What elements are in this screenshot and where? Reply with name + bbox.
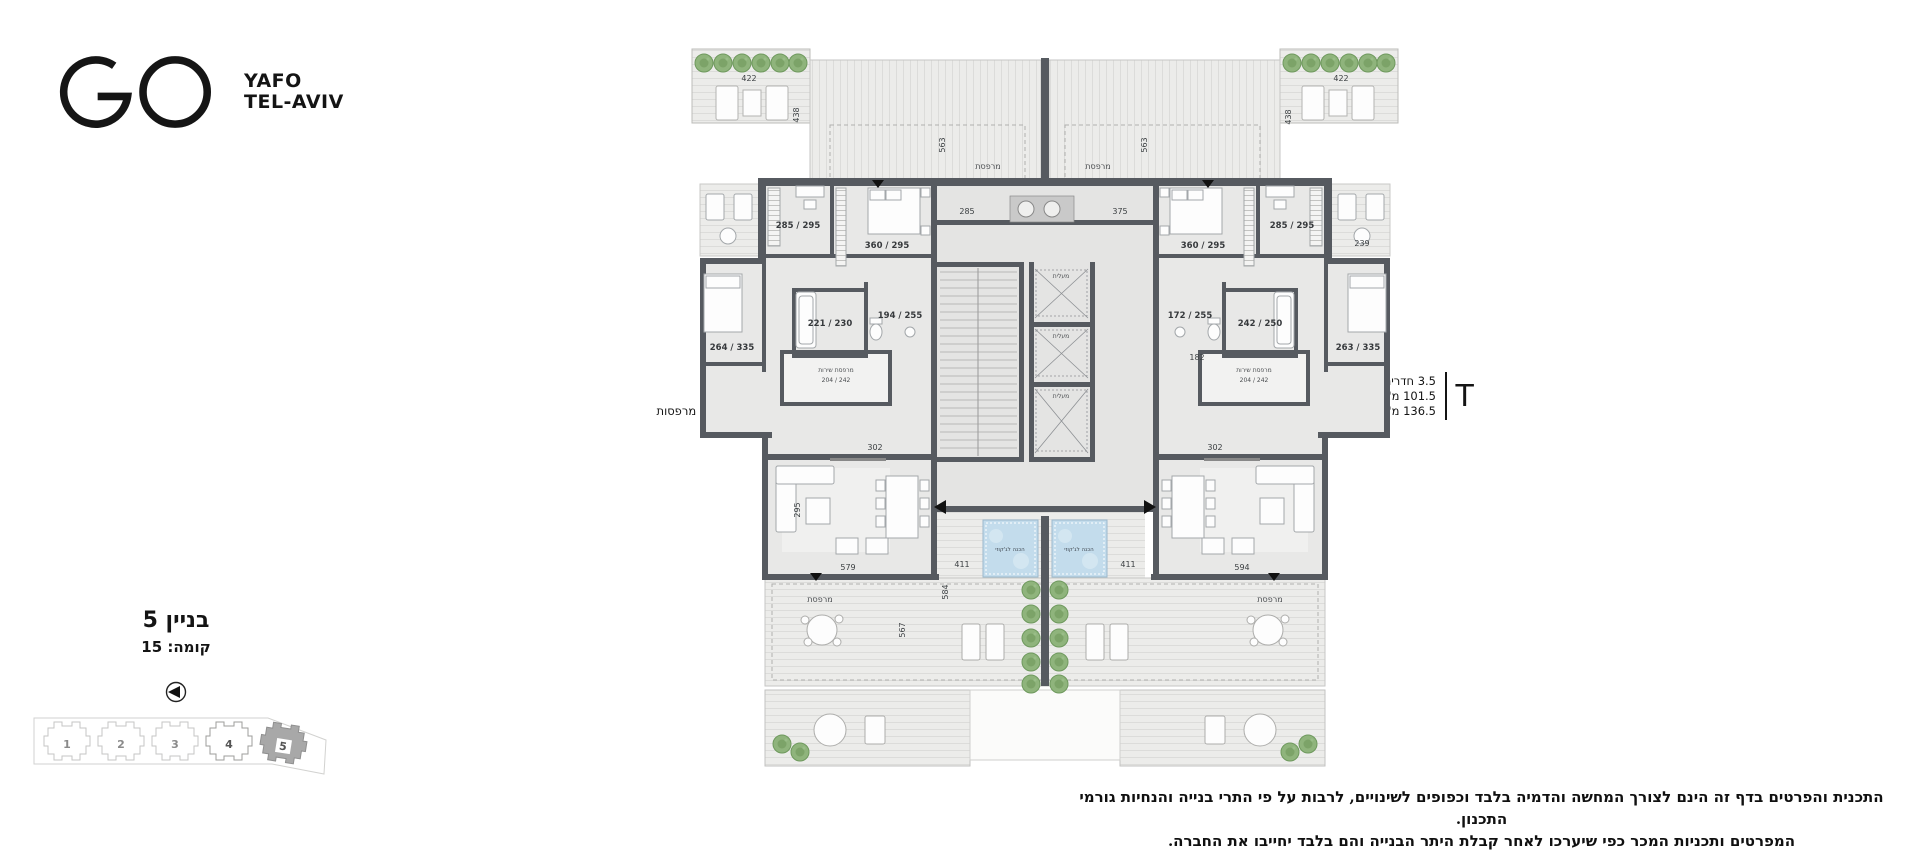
dim-label: 438 [792, 107, 801, 122]
dim-label: 302 [1207, 443, 1222, 452]
jacuzzi-left: הכנה לג'קוזי [983, 520, 1038, 577]
go-logo-icon [58, 46, 228, 138]
dim-label: 239 [1354, 239, 1369, 248]
elevator-label: מעלית [1053, 393, 1070, 400]
room-dim: 285 / 295 [776, 221, 821, 231]
room-dim: 360 / 295 [865, 241, 910, 251]
top-terraces: מרפסת מרפסת 422 422 438 438 563 563 [692, 49, 1398, 182]
terrace-label: מרפסת [1257, 595, 1282, 604]
dim-label: 411 [1120, 560, 1135, 569]
room-dim: 360 / 295 [1181, 241, 1226, 251]
dim-label: 182 [1189, 353, 1204, 362]
dim-label: 295 [793, 502, 802, 517]
dim-label: 579 [840, 563, 855, 572]
terrace-label: מרפסת [807, 595, 832, 604]
jacuzzi-right: הכנה לג'קוזי [1052, 520, 1107, 577]
dim-label: 584 [941, 584, 950, 599]
dim-label: 411 [954, 560, 969, 569]
disclaimer: התכנית והפרטים בדף זה הינם לצורך המחשה ו… [1055, 786, 1908, 852]
site-plan: 1 2 3 4 5 [28, 700, 338, 795]
elevator-label: מעלית [1053, 273, 1070, 280]
building-2: 2 [98, 722, 144, 760]
floor-plan: מרפסת מרפסת 422 422 438 438 563 563 [680, 30, 1410, 780]
brand-logo: YAFO TEL-AVIV [58, 46, 344, 138]
disclaimer-line2: המפרטים ותכניות המכר כפי שיערכו לאחר קבל… [1055, 830, 1908, 852]
room-dim: 263 / 335 [1336, 343, 1381, 353]
dim-label: 563 [938, 137, 947, 152]
building-3-number: 3 [171, 738, 179, 751]
floor-number: קומה: 15 [96, 638, 256, 656]
brand-line2: TEL-AVIV [244, 92, 344, 113]
building-4-number: 4 [225, 738, 233, 751]
room-dim: 285 / 295 [1270, 221, 1315, 231]
building-name: בניין 5 [96, 608, 256, 633]
service-balcony-dim: 204 / 242 [1240, 377, 1269, 384]
dim-label: 375 [1112, 207, 1127, 216]
brand-text: YAFO TEL-AVIV [244, 71, 344, 113]
service-balcony-label: מרפסת שירות [1236, 367, 1272, 374]
building-1: 1 [44, 722, 90, 760]
elevator-label: מעלית [1053, 333, 1070, 340]
dim-label: 438 [1284, 109, 1293, 124]
jacuzzi-label: הכנה לג'קוזי [1064, 546, 1094, 553]
terrace-divider-wall [1041, 516, 1049, 686]
dim-label: 422 [1333, 74, 1348, 83]
room-dim: 172 / 255 [1168, 311, 1213, 321]
dim-label: 285 [959, 207, 974, 216]
service-balcony-dim: 204 / 242 [822, 377, 851, 384]
building-5-highlighted: 5 [258, 721, 309, 766]
apt-t-letter: T [1456, 379, 1474, 414]
building-2-number: 2 [117, 738, 125, 751]
building-1-number: 1 [63, 738, 71, 751]
room-dim: 194 / 255 [878, 311, 923, 321]
terrace-label: מרפסת [975, 162, 1000, 171]
disclaimer-line1: התכנית והפרטים בדף זה הינם לצורך המחשה ו… [1055, 786, 1908, 830]
terrace-label: מרפסת [1085, 162, 1110, 171]
jacuzzi-label: הכנה לג'קוזי [995, 546, 1025, 553]
divider [1445, 372, 1447, 420]
service-balcony-label: מרפסת שירות [818, 367, 854, 374]
building-4: 4 [206, 722, 252, 760]
room-dim: 242 / 250 [1238, 319, 1283, 329]
building-3: 3 [152, 722, 198, 760]
room-dim: 264 / 335 [710, 343, 755, 353]
room-dim: 221 / 230 [808, 319, 853, 329]
building-info: בניין 5 קומה: 15 [96, 608, 256, 708]
dim-label: 302 [867, 443, 882, 452]
dim-label: 422 [741, 74, 756, 83]
dim-label: 563 [1140, 137, 1149, 152]
dim-label: 567 [898, 622, 907, 637]
dim-label: 594 [1234, 563, 1249, 572]
brand-line1: YAFO [244, 71, 344, 92]
terrace-divider-wall [1041, 58, 1049, 182]
roof-equipment [1010, 196, 1074, 222]
